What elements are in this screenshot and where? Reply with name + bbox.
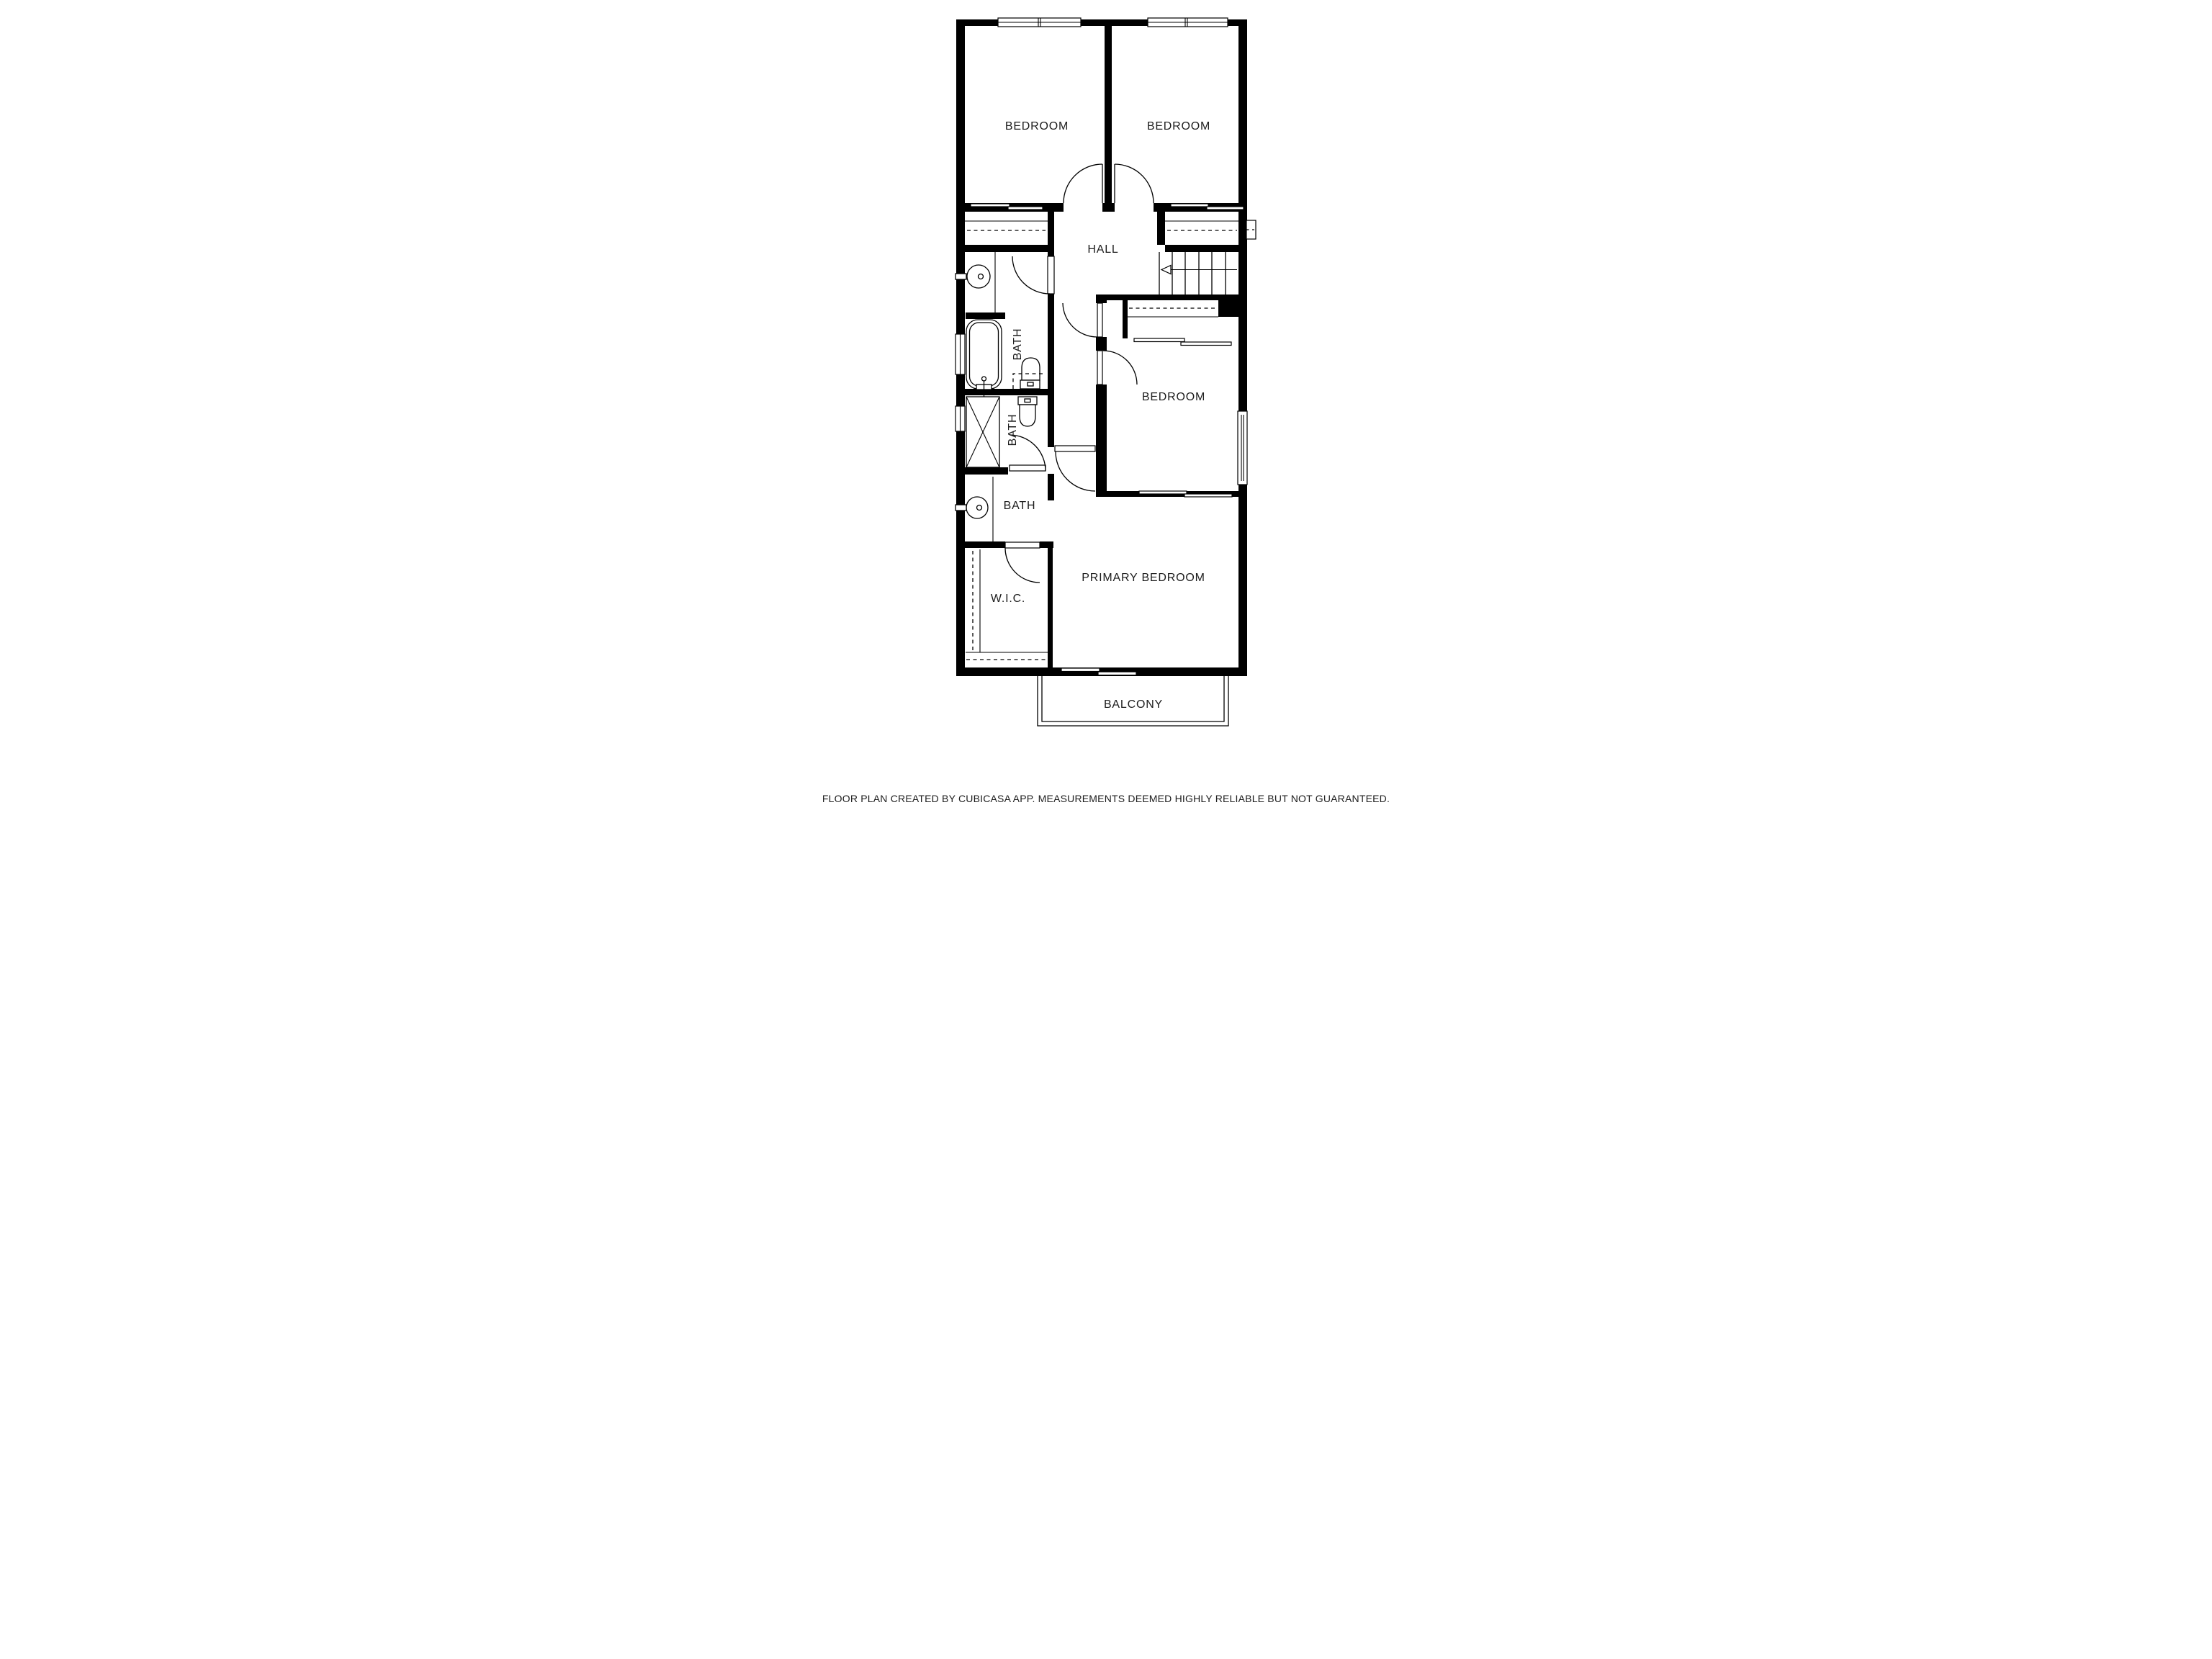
stairs (1159, 252, 1237, 295)
door-hall-closet (1063, 303, 1102, 337)
room-label-balcony: BALCONY (1104, 698, 1163, 711)
window-bedroom-middle (1238, 411, 1247, 485)
closet-bedroom-left (965, 221, 1048, 230)
slider-closet-middle (1134, 338, 1231, 346)
door-wic (1005, 542, 1040, 583)
footer-disclaimer: FLOOR PLAN CREATED BY CUBICASA APP. MEAS… (822, 793, 1390, 804)
window-bedroom-left (998, 18, 1081, 27)
shower (966, 397, 999, 467)
floor-plan-drawing: BEDROOM BEDROOM HALL BATH BATH BATH BEDR… (553, 0, 1659, 829)
door-hall-to-bath (1055, 446, 1095, 491)
room-label-bedroom-top-right: BEDROOM (1147, 120, 1210, 132)
window-bedroom-right (1148, 18, 1228, 27)
room-label-bath-upper: BATH (1012, 328, 1024, 361)
door-bedroom-top-left (1064, 164, 1102, 203)
closet-bedroom-right (1165, 221, 1238, 230)
window-bath-tub (956, 334, 965, 374)
room-label-primary-bedroom: PRIMARY BEDROOM (1082, 572, 1205, 584)
room-label-wic: W.I.C. (991, 593, 1025, 605)
door-bedroom-middle (1097, 351, 1137, 385)
room-label-hall: HALL (1087, 243, 1118, 256)
duct-chase (1218, 300, 1244, 317)
room-label-bath-middle: BATH (1007, 414, 1019, 446)
room-label-bedroom-middle: BEDROOM (1142, 391, 1205, 403)
room-label-bath-lower: BATH (1004, 500, 1036, 512)
floor-plan-page: BEDROOM BEDROOM HALL BATH BATH BATH BEDR… (553, 0, 1659, 829)
door-bath-upper (1012, 256, 1054, 294)
closet-bedroom-middle (1128, 308, 1218, 317)
room-label-bedroom-top-left: BEDROOM (1005, 120, 1069, 132)
toilet-middle-bath (1018, 397, 1037, 426)
door-bedroom-top-right (1115, 164, 1154, 203)
window-bath-shower (956, 406, 965, 431)
toilet-upper-bath (1020, 358, 1040, 389)
